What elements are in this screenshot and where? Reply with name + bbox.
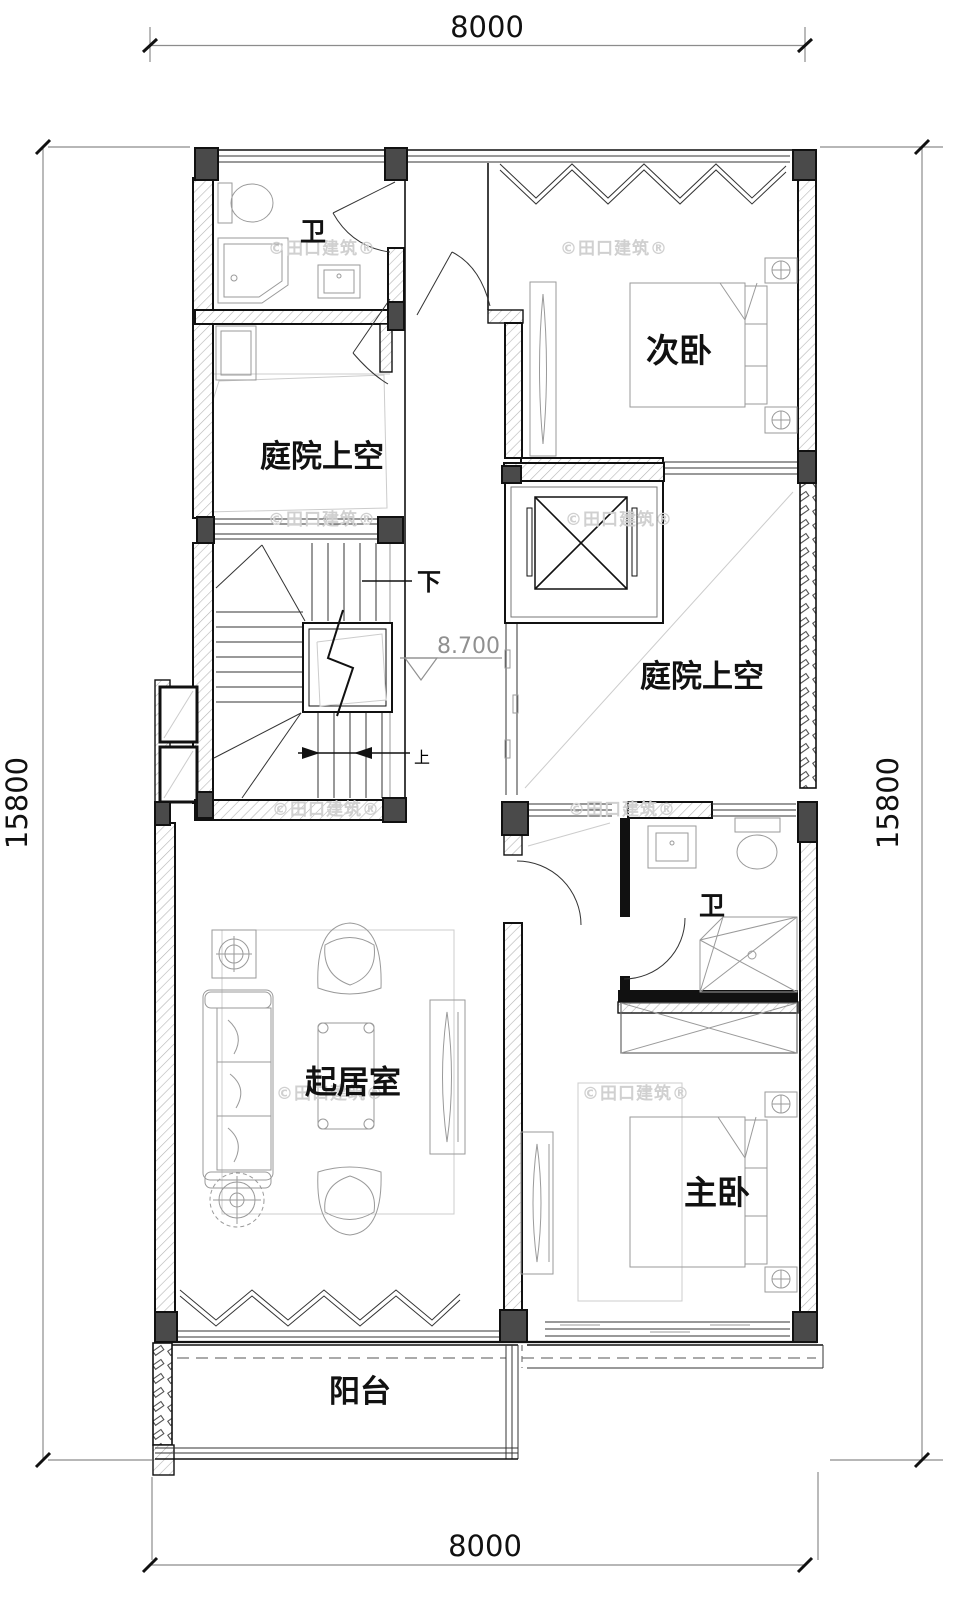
dim-left: 15800 (0, 757, 34, 849)
balcony-terrace (155, 1345, 823, 1459)
tv-cabinet (521, 1132, 553, 1274)
label-secondary-bedroom: 次卧 (646, 331, 712, 370)
floor-plan-drawing: 8000 8000 15800 15800 (0, 0, 960, 1600)
toilet-tank (735, 818, 780, 832)
label-master-bedroom: 主卧 (684, 1173, 750, 1212)
door-hall-upper (417, 252, 490, 315)
structural-columns (155, 148, 817, 1342)
watermark: ©田口建筑® (582, 1083, 690, 1104)
master-bedroom-furniture (521, 1083, 797, 1301)
floor-plan-canvas: 8000 8000 15800 15800 (0, 0, 960, 1600)
label-courtyard-right: 庭院上空 (640, 659, 764, 695)
door-bath-lower (624, 918, 685, 979)
label-balcony: 阳台 (329, 1374, 391, 1410)
vanity-sink (648, 826, 696, 868)
console-cabinet (530, 282, 556, 456)
watermark: ©田口建筑® (272, 799, 380, 820)
watermark: ©田口建筑® (568, 799, 676, 820)
stair-void (303, 623, 392, 712)
label-living-room: 起居室 (305, 1063, 401, 1101)
elevator-shaft (505, 481, 663, 623)
elevation-marker-icon (405, 658, 437, 680)
washer (216, 326, 256, 380)
stair-down-label: 下 (417, 568, 441, 596)
label-bath-lower: 卫 (699, 892, 725, 922)
label-bath-upper: 卫 (300, 218, 326, 248)
elevation-value: 8.700 (437, 634, 500, 659)
staircase: 下 上 8.700 (214, 543, 502, 798)
label-courtyard-upper: 庭院上空 (260, 439, 384, 475)
toilet-bowl (231, 184, 273, 222)
dim-bottom: 8000 (448, 1529, 522, 1563)
dim-right: 15800 (871, 757, 905, 849)
armchair (318, 923, 381, 994)
armchair (318, 1167, 381, 1235)
watermark: ©田口建筑® (560, 238, 668, 259)
tv-cabinet (430, 1000, 465, 1154)
bath-upper-fixtures (216, 183, 360, 380)
door-master-bedroom (517, 861, 581, 925)
walls (153, 150, 817, 1475)
toilet-tank (218, 183, 232, 223)
toilet-bowl (737, 835, 777, 869)
bath-lower-fixtures (621, 818, 797, 1053)
watermark: ©田口建筑® (268, 509, 376, 530)
watermark: ©田口建筑® (565, 509, 673, 530)
stair-up-label: 上 (414, 748, 430, 767)
dim-top: 8000 (450, 10, 524, 44)
